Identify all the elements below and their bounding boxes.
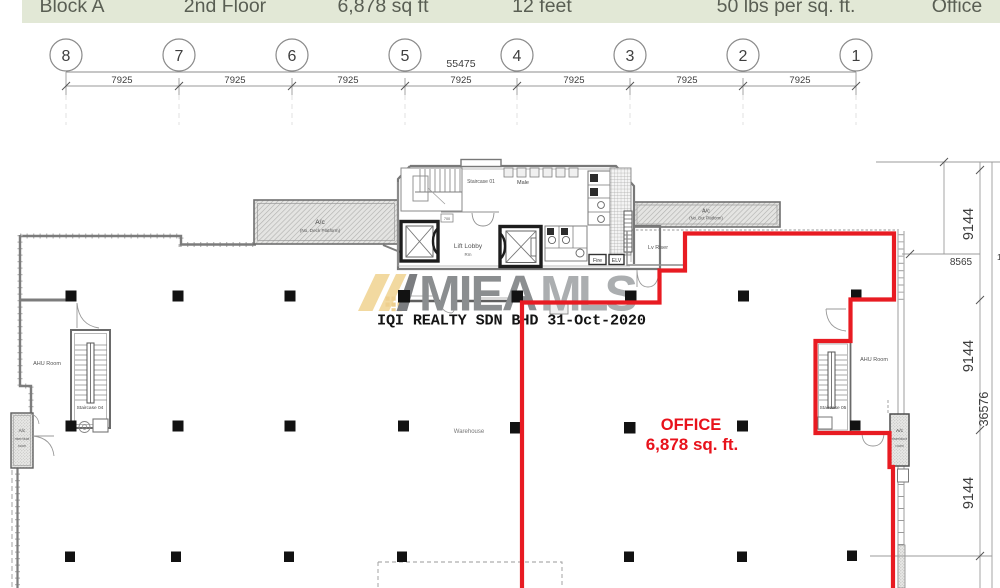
svg-text:9144: 9144 xyxy=(961,208,977,240)
svg-text:2nd Floor: 2nd Floor xyxy=(184,0,267,17)
svg-text:A/c: A/c xyxy=(896,428,904,434)
svg-text:room: room xyxy=(18,444,26,448)
svg-text:riser/duct: riser/duct xyxy=(15,437,30,441)
svg-text:7925: 7925 xyxy=(337,75,358,86)
svg-text:(No. But Platform): (No. But Platform) xyxy=(689,216,723,221)
svg-text:7925: 7925 xyxy=(450,75,471,86)
svg-text:8565: 8565 xyxy=(950,257,973,268)
svg-text:(No. Deck Platform): (No. Deck Platform) xyxy=(300,228,341,233)
svg-text:A/c: A/c xyxy=(702,209,710,215)
svg-text:Staircase 04: Staircase 04 xyxy=(77,405,104,411)
svg-text:7925: 7925 xyxy=(111,75,132,86)
svg-text:IQI REALTY SDN BHD 31-Oct-2020: IQI REALTY SDN BHD 31-Oct-2020 xyxy=(377,312,646,330)
svg-text:7925: 7925 xyxy=(789,75,810,86)
svg-text:Lift Lobby: Lift Lobby xyxy=(454,243,483,250)
svg-text:4: 4 xyxy=(513,48,522,65)
svg-text:riser/duct: riser/duct xyxy=(892,437,907,441)
svg-text:55475: 55475 xyxy=(446,58,475,70)
svg-text:Fire: Fire xyxy=(593,258,602,264)
svg-text:Staircase 01: Staircase 01 xyxy=(467,179,495,185)
svg-text:3: 3 xyxy=(626,48,635,65)
svg-text:Lv Riser: Lv Riser xyxy=(648,245,668,251)
svg-text:6: 6 xyxy=(288,48,297,65)
svg-text:36576: 36576 xyxy=(977,392,991,427)
svg-text:A/c: A/c xyxy=(19,428,26,433)
svg-text:Warehouse: Warehouse xyxy=(454,429,485,435)
svg-text:Office: Office xyxy=(932,0,983,17)
svg-text:Block A: Block A xyxy=(39,0,104,17)
svg-text:7925: 7925 xyxy=(676,75,697,86)
svg-text:OFFICE: OFFICE xyxy=(661,416,722,434)
svg-text:700: 700 xyxy=(444,217,450,221)
svg-text:6,878 sq ft: 6,878 sq ft xyxy=(337,0,429,17)
svg-text:12 feet: 12 feet xyxy=(512,0,572,17)
svg-text:7925: 7925 xyxy=(224,75,245,86)
svg-text:A/c: A/c xyxy=(315,219,325,226)
svg-text:2: 2 xyxy=(739,48,748,65)
svg-text:7: 7 xyxy=(175,48,184,65)
svg-text:5: 5 xyxy=(401,48,410,65)
svg-text:AHU Room: AHU Room xyxy=(33,361,61,367)
svg-text:50 lbs per sq. ft.: 50 lbs per sq. ft. xyxy=(717,0,856,17)
svg-text:6,878 sq. ft.: 6,878 sq. ft. xyxy=(646,435,739,454)
svg-text:Rm: Rm xyxy=(465,252,472,257)
svg-text:room: room xyxy=(895,444,903,448)
svg-text:1: 1 xyxy=(852,48,861,65)
svg-text:ELV: ELV xyxy=(612,258,622,264)
svg-text:7925: 7925 xyxy=(563,75,584,86)
svg-text:9144: 9144 xyxy=(961,340,977,372)
svg-text:Staircase 05: Staircase 05 xyxy=(820,405,847,411)
svg-text:9144: 9144 xyxy=(961,477,977,509)
svg-text:AHU Room: AHU Room xyxy=(860,357,888,363)
svg-text:Male: Male xyxy=(517,180,529,186)
svg-text:8: 8 xyxy=(62,48,71,65)
